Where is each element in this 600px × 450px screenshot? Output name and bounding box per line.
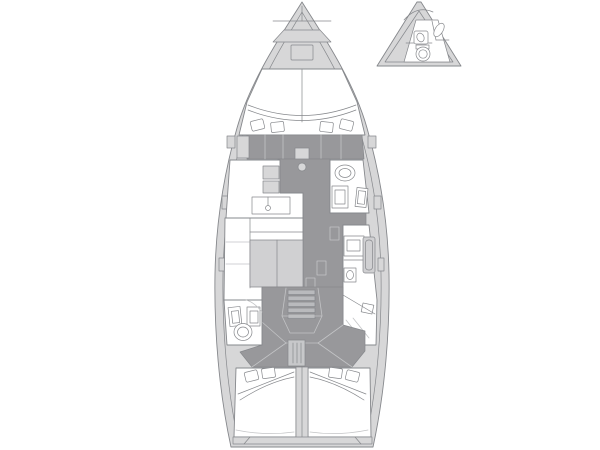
transom-platform <box>233 437 372 444</box>
wardrobe-lockers <box>237 135 364 160</box>
main-hull-plan <box>215 2 389 447</box>
aft-head-toilet <box>234 324 252 341</box>
helm-console <box>288 340 305 366</box>
floorplan-svg <box>0 0 600 450</box>
foredeck-hatch <box>291 45 313 60</box>
mast-base <box>298 163 306 171</box>
bow-option-inset <box>377 2 461 66</box>
bow-wc-basin <box>414 31 428 44</box>
aft-head <box>224 300 262 345</box>
galley-stove <box>363 237 375 273</box>
chart-table <box>252 197 290 214</box>
galley-sink <box>344 268 356 282</box>
yacht-floorplan-figure <box>0 0 600 450</box>
forward-cabin-vberth <box>239 69 365 135</box>
forward-head <box>330 160 369 213</box>
mast-step <box>295 148 309 160</box>
saloon-table <box>250 240 303 287</box>
bow-wc-toilet <box>416 45 430 61</box>
forward-head-toilet <box>335 165 355 181</box>
aft-cabins <box>233 367 372 444</box>
